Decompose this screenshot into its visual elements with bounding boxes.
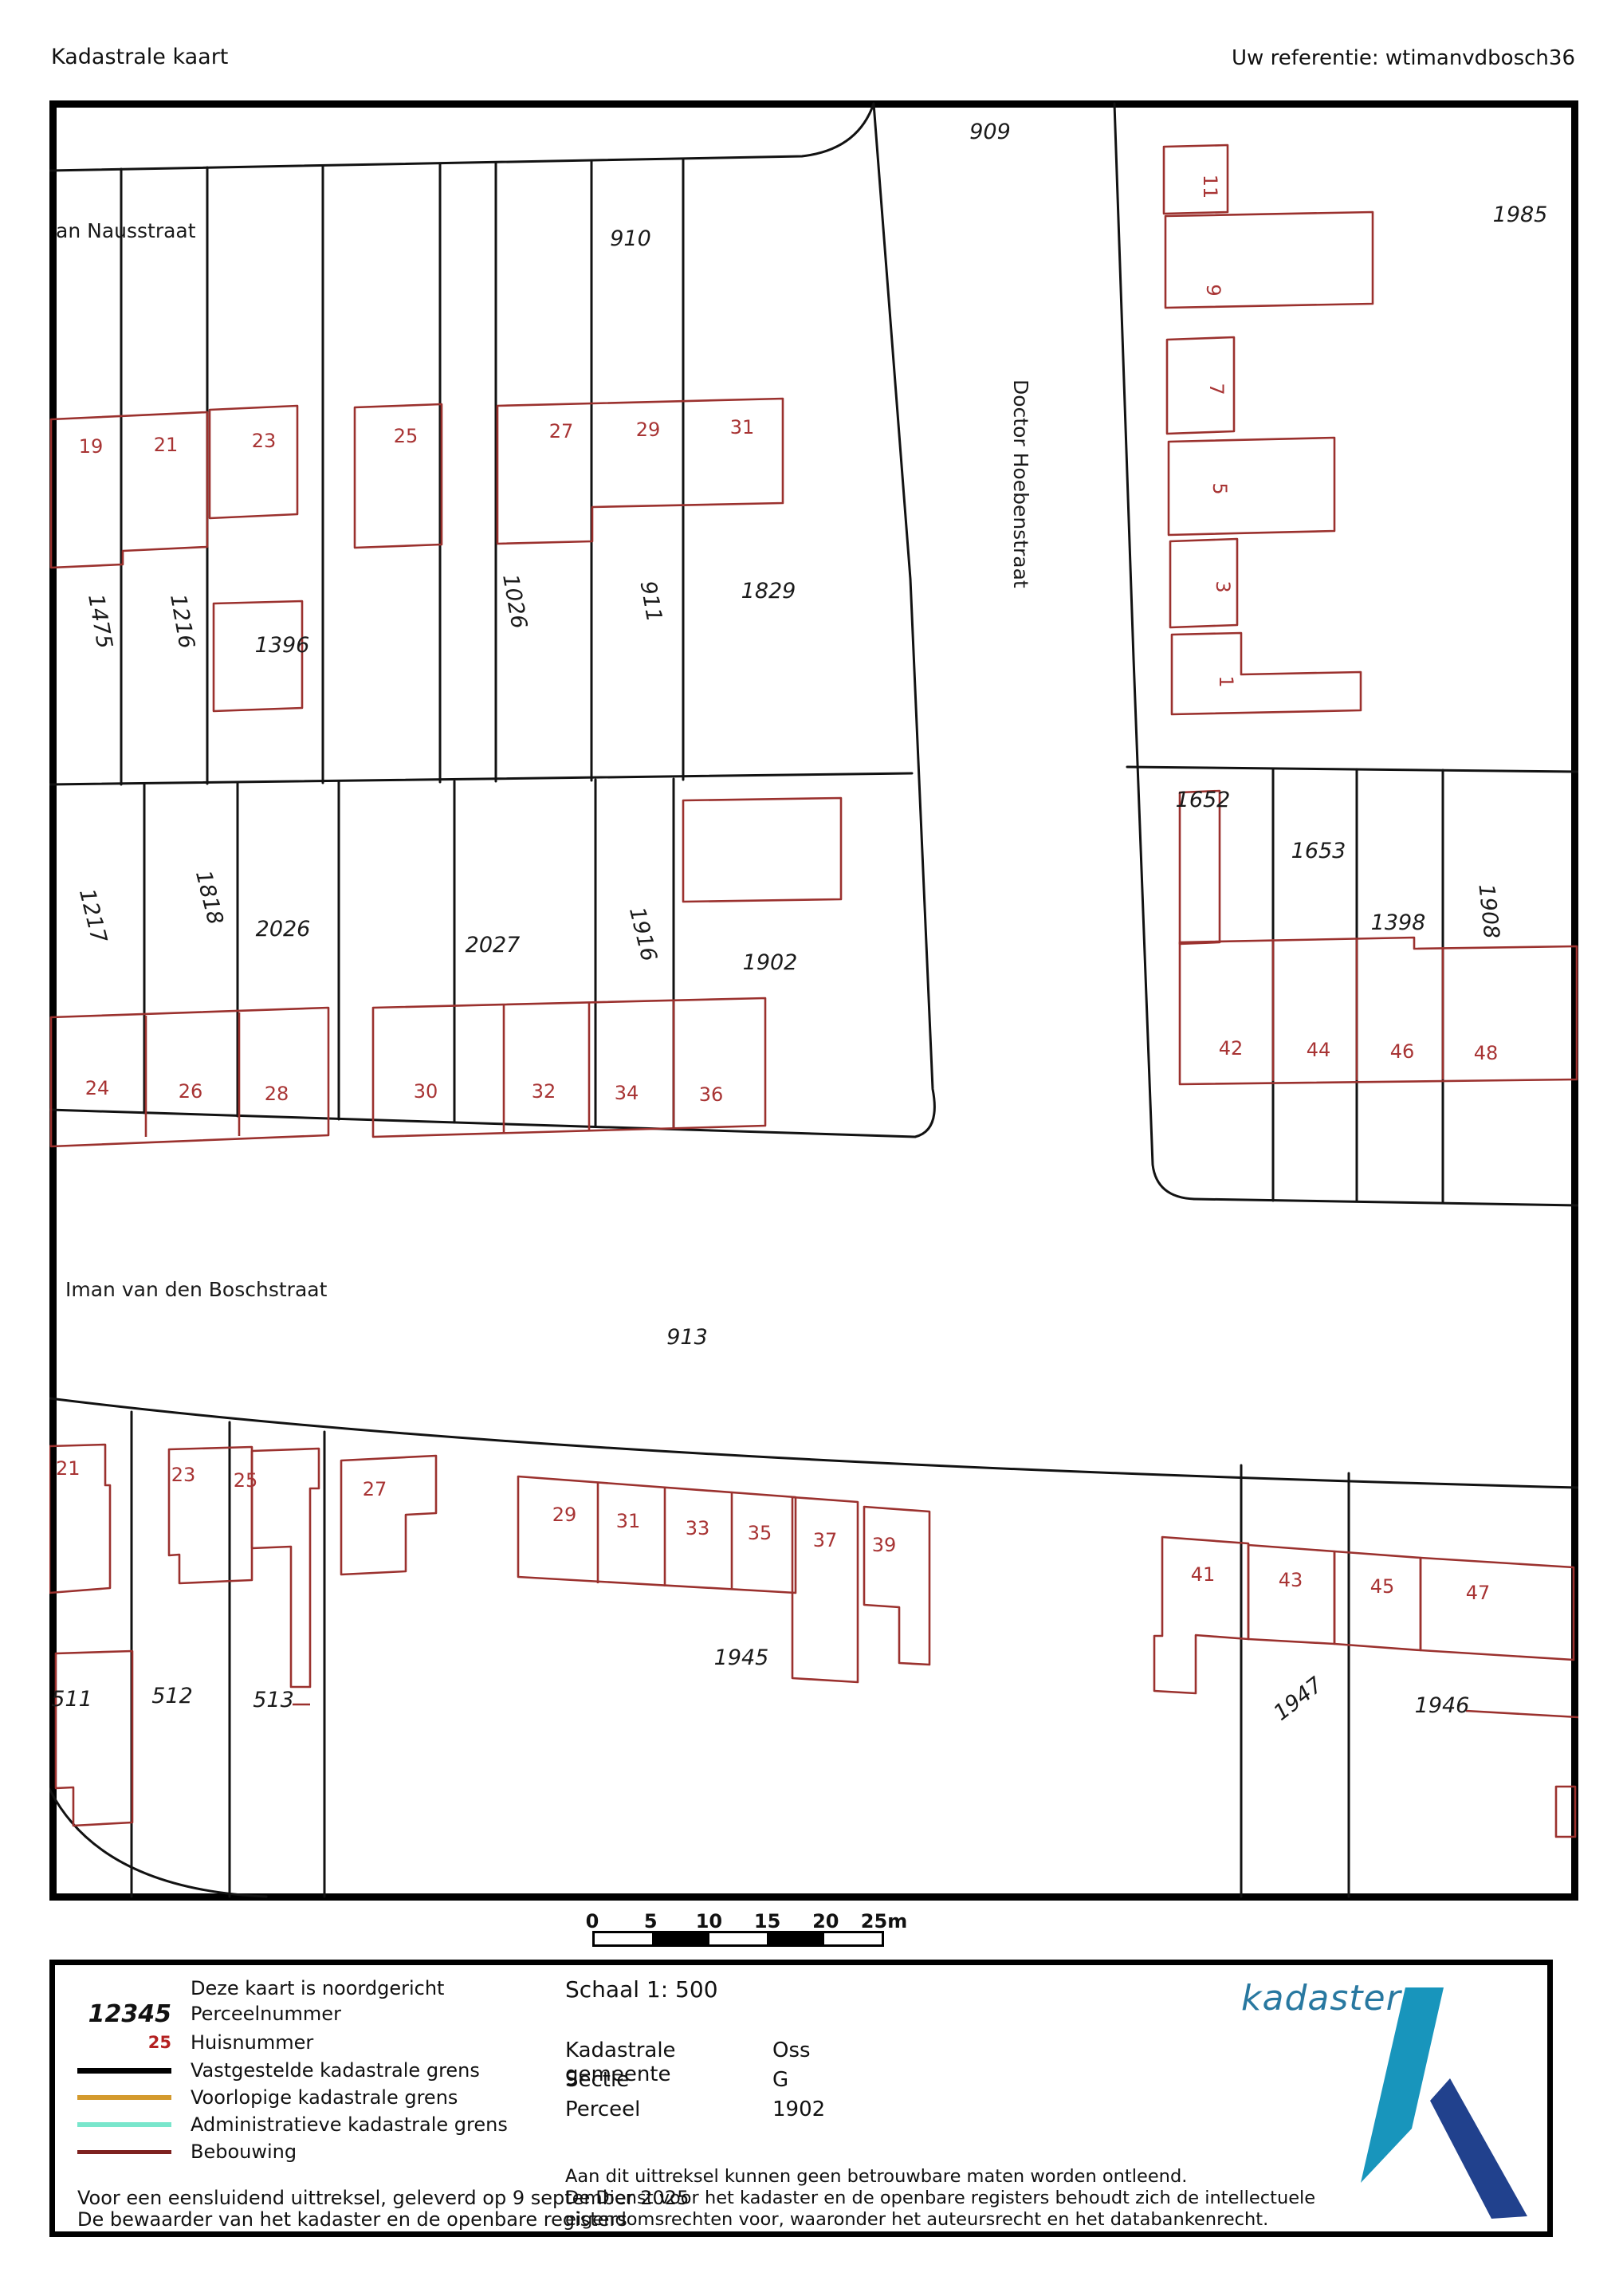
kadaster-logo-mark — [1348, 1981, 1550, 2222]
house-number-23: 23 — [252, 430, 277, 452]
street-label-iman-van-den-boschstraat: Iman van den Boschstraat — [65, 1278, 328, 1301]
house-number-39: 39 — [872, 1534, 897, 1556]
legend-label: Administratieve kadastrale grens — [191, 2113, 508, 2136]
scale-segment — [709, 1933, 767, 1944]
scale-tick-20: 20 — [812, 1910, 839, 1932]
house-number-25: 25 — [394, 425, 419, 447]
house-number-31: 31 — [616, 1510, 641, 1532]
house-number-46: 46 — [1390, 1040, 1415, 1063]
scale-bar: 0510152025m — [592, 1910, 884, 1947]
house-number-32: 32 — [532, 1080, 556, 1103]
parcel-number-1902: 1902 — [743, 950, 798, 975]
house-number-19: 19 — [79, 435, 104, 458]
legend-box: Deze kaart is noordgericht 12345 Perceel… — [49, 1960, 1553, 2237]
scale-bar-ticks: 0510152025m — [592, 1910, 884, 1929]
legend-row-perceelnummer: 12345 Perceelnummer — [55, 2002, 341, 2026]
legend-label: Huisnummer — [191, 2031, 313, 2054]
legend-label: Deze kaart is noordgericht — [191, 1977, 444, 1999]
parcel-number-1217: 1217 — [74, 887, 112, 946]
house-number-44: 44 — [1307, 1039, 1331, 1061]
map-border — [53, 104, 1575, 1897]
legend-label: Vastgestelde kadastrale grens — [191, 2059, 480, 2082]
house-number-41: 41 — [1191, 1563, 1216, 1586]
house-number-23: 23 — [171, 1464, 196, 1486]
parcel-number-1216: 1216 — [165, 592, 198, 651]
legend-row-bebouwing: Bebouwing — [55, 2140, 297, 2164]
house-number-27: 27 — [549, 420, 574, 442]
scale-tick-0: 0 — [586, 1910, 599, 1932]
line-symbol-black — [77, 2068, 171, 2074]
legend-row-huisnummer: 25 Huisnummer — [55, 2031, 313, 2054]
house-number-45: 45 — [1370, 1575, 1395, 1598]
parcel-number-1947: 1947 — [1269, 1673, 1327, 1726]
map-labels: an NausstraatIman van den BoschstraatDoc… — [51, 120, 1547, 1726]
house-number-37: 37 — [813, 1529, 838, 1551]
disclaimer-text: Aan dit uittreksel kunnen geen betrouwba… — [565, 2166, 1315, 2231]
street-label-doctor-hoebenstraat: Doctor Hoebenstraat — [1009, 379, 1032, 588]
house-number-27: 27 — [363, 1478, 387, 1500]
legend-row-north: Deze kaart is noordgericht — [55, 1976, 444, 2000]
house-number-24: 24 — [85, 1077, 110, 1099]
scale-bar-graphic — [592, 1931, 884, 1947]
house-number-34: 34 — [615, 1082, 639, 1104]
legend-label: Perceelnummer — [191, 2003, 341, 2025]
sectie-label: Sectie — [565, 2068, 725, 2092]
cadastral-extract-page: Kadastrale kaart Uw referentie: wtimanvd… — [0, 0, 1623, 2296]
legend-label: Bebouwing — [191, 2141, 297, 2163]
parcel-number-2027: 2027 — [466, 933, 521, 957]
parcel-number-511: 511 — [51, 1687, 92, 1712]
parcel-number-sample: 12345 — [77, 2000, 171, 2028]
house-number-sample: 25 — [77, 2033, 171, 2052]
parcel-number-1026: 1026 — [497, 572, 531, 631]
parcel-number-1475: 1475 — [83, 592, 116, 651]
street-label-an-nausstraat: an Nausstraat — [56, 219, 196, 242]
disclaimer-line3: eigendomsrechten voor, waaronder het aut… — [565, 2209, 1315, 2231]
house-number-25: 25 — [234, 1469, 258, 1492]
parcel-number-1945: 1945 — [714, 1645, 769, 1670]
parcel-number-2026: 2026 — [256, 917, 311, 942]
parcel-number-1829: 1829 — [741, 579, 796, 603]
legend-row-voorlopige-grens: Voorlopige kadastrale grens — [55, 2086, 458, 2109]
house-number-21: 21 — [56, 1457, 81, 1480]
cadastral-map: an NausstraatIman van den BoschstraatDoc… — [49, 100, 1578, 1901]
house-number-43: 43 — [1279, 1569, 1303, 1591]
logo-stroke-navy — [1430, 2078, 1527, 2219]
house-number-31: 31 — [730, 416, 755, 438]
perceel-value: 1902 — [772, 2097, 825, 2121]
house-number-48: 48 — [1474, 1042, 1499, 1064]
house-number-28: 28 — [265, 1083, 289, 1105]
house-number-5: 5 — [1208, 482, 1231, 494]
line-symbol-cyan — [77, 2122, 171, 2127]
house-number-42: 42 — [1219, 1037, 1244, 1060]
parcel-number-909: 909 — [969, 120, 1011, 144]
house-number-11: 11 — [1199, 175, 1221, 199]
scale-segment — [595, 1933, 652, 1944]
parcel-number-512: 512 — [151, 1684, 193, 1708]
parcel-number-911: 911 — [635, 579, 666, 623]
scale-tick-10: 10 — [696, 1910, 722, 1932]
scale-tick-25m: 25m — [861, 1910, 907, 1932]
disclaimer-line1: Aan dit uittreksel kunnen geen betrouwba… — [565, 2166, 1315, 2188]
parcel-boundaries — [49, 104, 1578, 1897]
house-number-33: 33 — [686, 1517, 710, 1539]
logo-blade-teal — [1361, 1987, 1444, 2183]
house-number-21: 21 — [154, 434, 179, 456]
parcel-number-1398: 1398 — [1371, 910, 1426, 935]
scale-text: Schaal 1: 500 — [565, 1976, 718, 2003]
reference-text: Uw referentie: wtimanvdbosch36 — [1232, 46, 1575, 70]
parcel-number-1985: 1985 — [1493, 202, 1548, 227]
delivery-note-line2: De bewaarder van het kadaster en de open… — [77, 2208, 627, 2231]
parcel-number-910: 910 — [610, 226, 651, 251]
house-number-36: 36 — [699, 1083, 724, 1106]
parcel-number-1946: 1946 — [1415, 1693, 1470, 1718]
parcel-number-1908: 1908 — [1473, 883, 1503, 940]
house-number-7: 7 — [1205, 383, 1228, 395]
parcel-number-1396: 1396 — [255, 633, 310, 658]
line-symbol-darkred — [77, 2150, 171, 2154]
scale-tick-5: 5 — [644, 1910, 658, 1932]
house-number-1: 1 — [1215, 675, 1237, 687]
line-symbol-orange — [77, 2095, 171, 2100]
kv-perceel: Perceel 1902 — [565, 2097, 825, 2121]
legend-row-administratieve-grens: Administratieve kadastrale grens — [55, 2113, 508, 2137]
scale-segment — [767, 1933, 824, 1944]
house-number-35: 35 — [748, 1522, 772, 1544]
parcel-number-1818: 1818 — [191, 868, 228, 927]
parcel-number-913: 913 — [666, 1325, 708, 1350]
parcel-number-1653: 1653 — [1291, 839, 1346, 863]
parcel-number-1916: 1916 — [624, 905, 662, 964]
house-number-47: 47 — [1466, 1582, 1491, 1604]
page-title: Kadastrale kaart — [51, 45, 228, 69]
kv-sectie: Sectie G — [565, 2068, 788, 2092]
legend-row-vastgestelde-grens: Vastgestelde kadastrale grens — [55, 2058, 480, 2082]
perceel-label: Perceel — [565, 2097, 725, 2121]
house-number-26: 26 — [179, 1080, 203, 1103]
house-number-30: 30 — [414, 1080, 438, 1103]
house-number-29: 29 — [552, 1504, 577, 1526]
map-frame: an NausstraatIman van den BoschstraatDoc… — [49, 100, 1578, 1901]
parcel-number-513: 513 — [253, 1688, 294, 1712]
house-number-3: 3 — [1212, 580, 1234, 592]
house-number-29: 29 — [636, 419, 661, 441]
scale-segment — [652, 1933, 709, 1944]
scale-segment — [824, 1933, 882, 1944]
scale-tick-15: 15 — [754, 1910, 780, 1932]
disclaimer-line2: De Dienst voor het kadaster en de openba… — [565, 2188, 1315, 2209]
sectie-value: G — [772, 2068, 788, 2092]
parcel-number-1652: 1652 — [1176, 788, 1231, 812]
house-number-9: 9 — [1202, 284, 1224, 296]
legend-label: Voorlopige kadastrale grens — [191, 2086, 458, 2109]
